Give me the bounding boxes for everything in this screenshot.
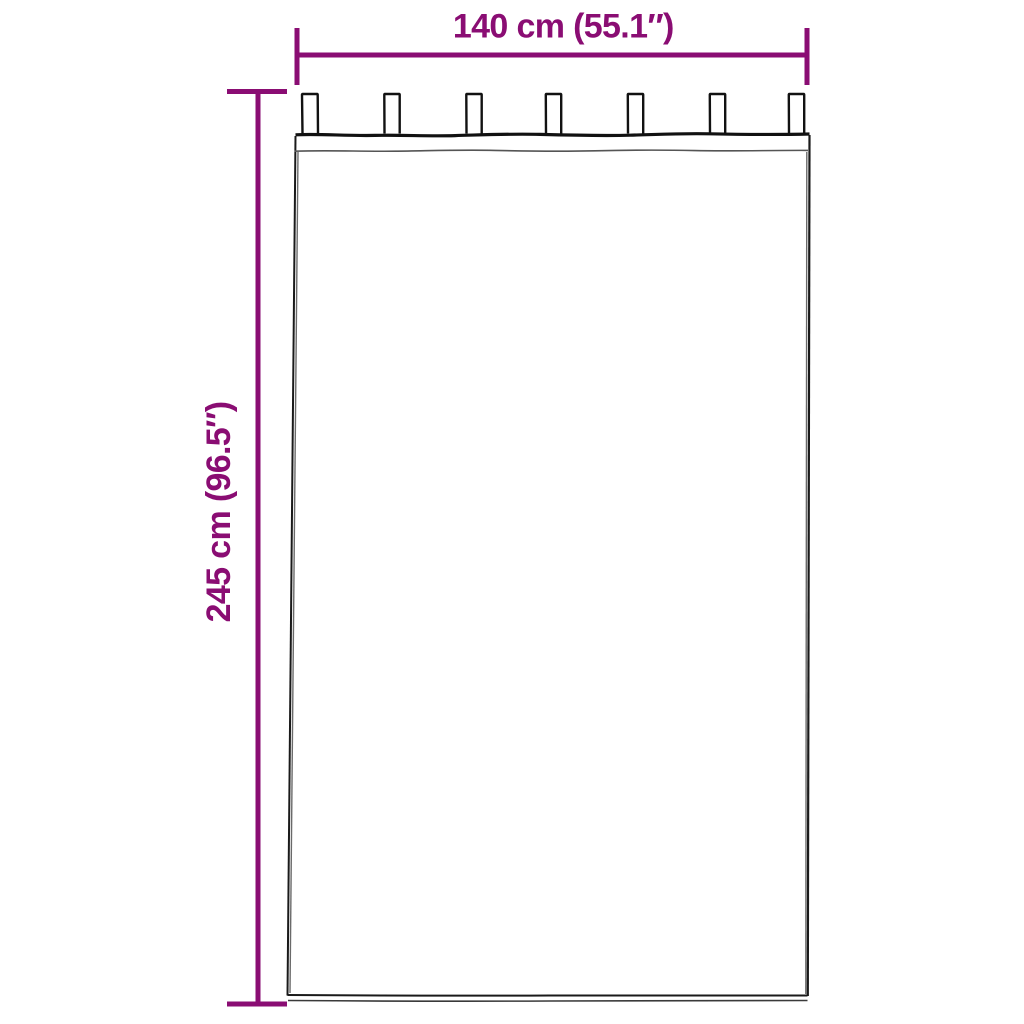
svg-text:140 cm (55.1″): 140 cm (55.1″): [453, 7, 674, 45]
svg-text:245 cm (96.5″): 245 cm (96.5″): [200, 402, 238, 623]
